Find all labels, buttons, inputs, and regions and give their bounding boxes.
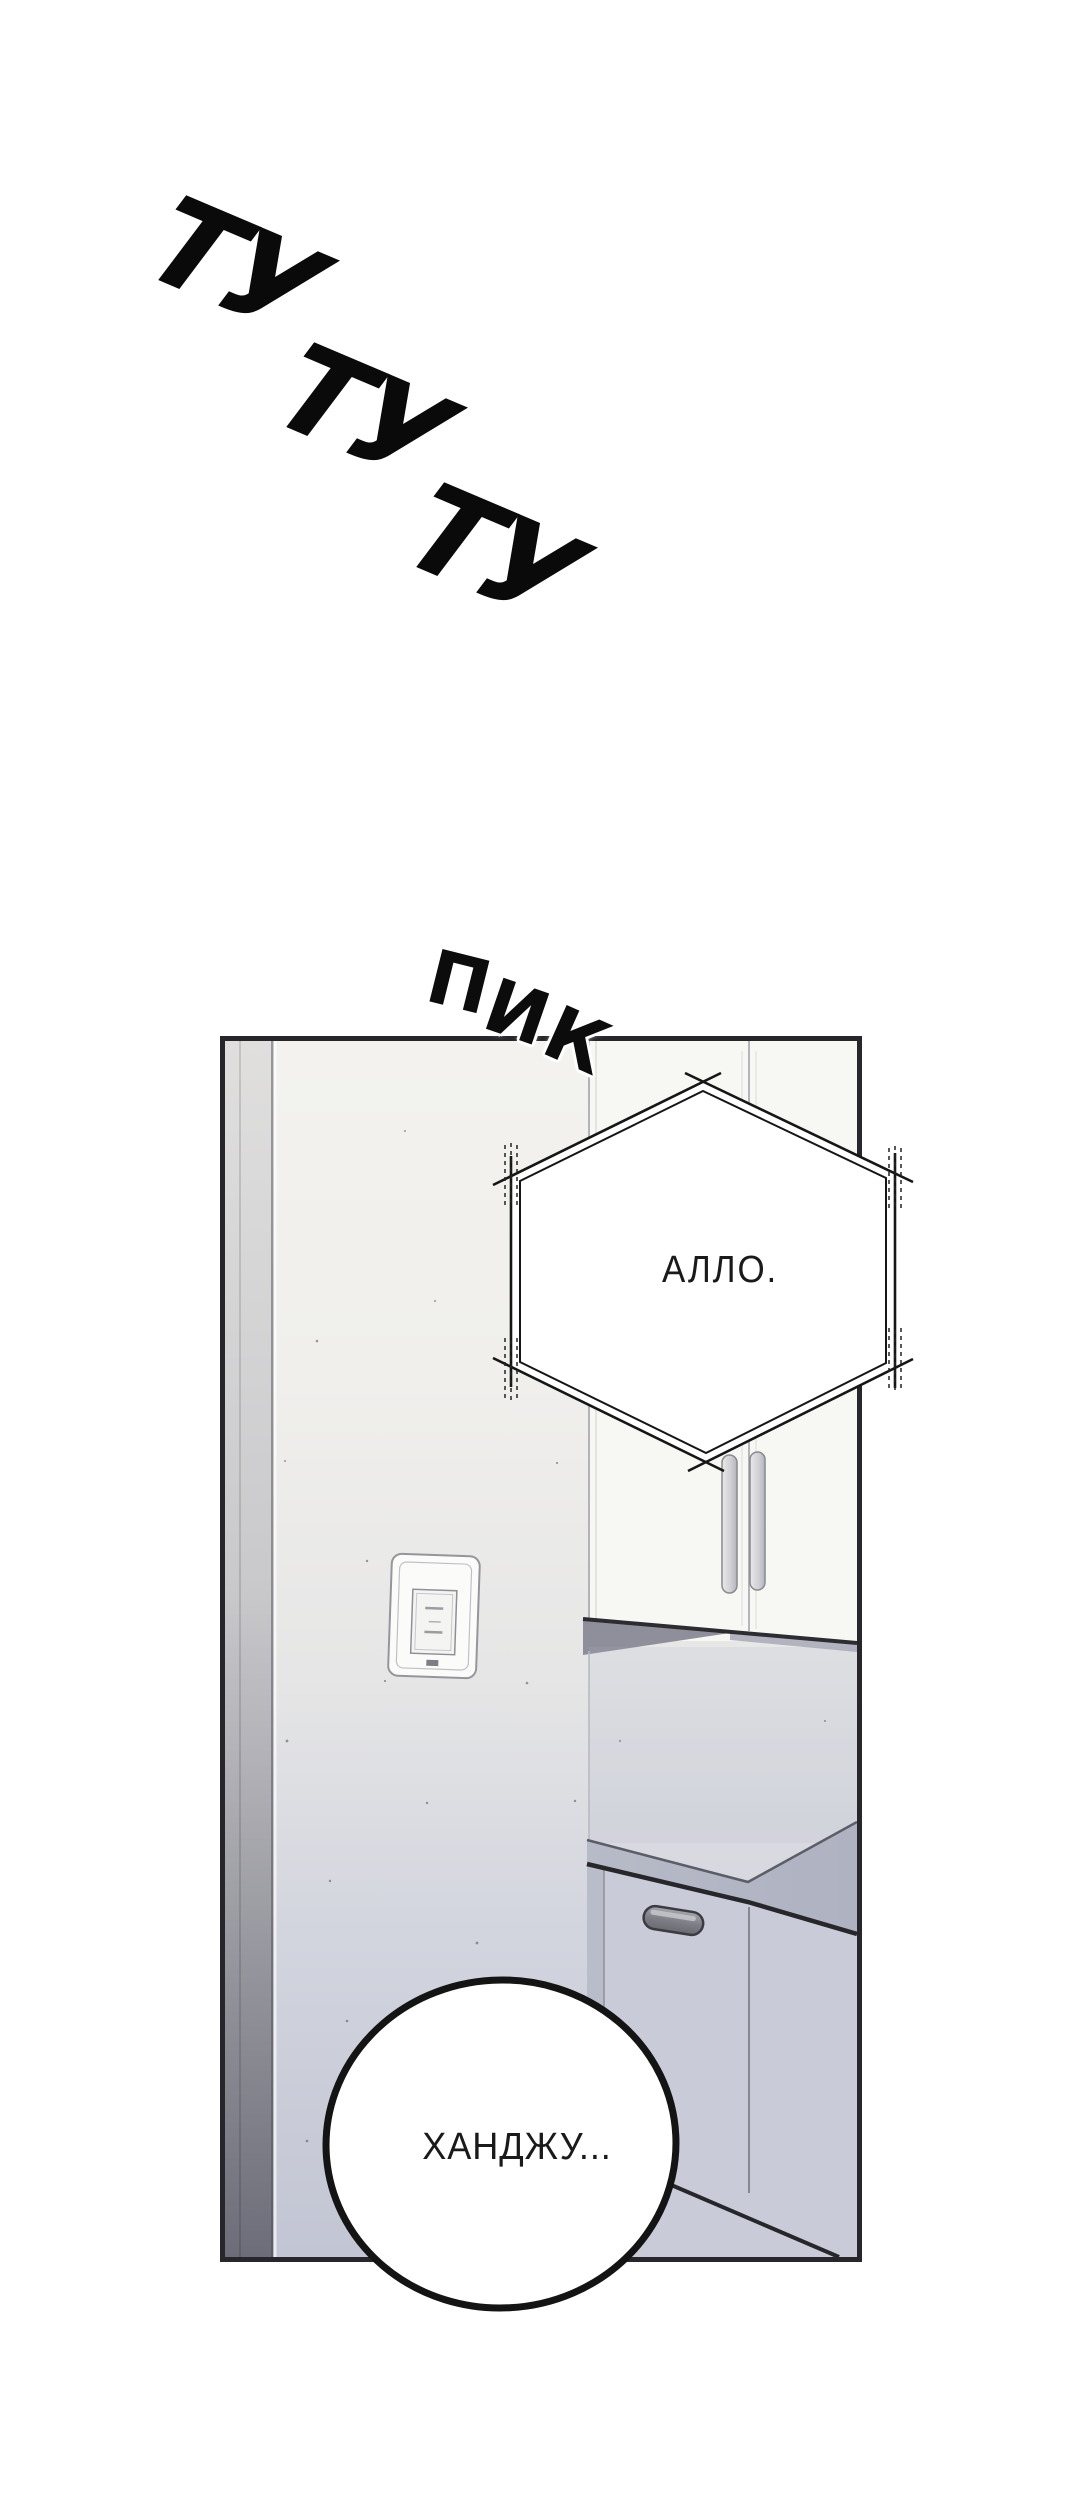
door-frame-strip xyxy=(225,1041,277,2257)
sfx-beep: ПИК xyxy=(428,946,606,1020)
round-bubble-text: ХАНДЖУ... xyxy=(389,2126,646,2168)
comic-page: ТУ ТУ ТУ xyxy=(0,0,1080,2517)
kitchen-wall-recess xyxy=(589,1647,857,1843)
light-switch xyxy=(388,1554,480,1679)
sfx-phone-ring-1: ТУ xyxy=(119,184,347,349)
hex-bubble-text: АЛЛО. xyxy=(637,1250,803,1290)
sfx-phone-ring-2: ТУ xyxy=(247,331,475,496)
sfx-phone-ring-3: ТУ xyxy=(377,471,605,636)
